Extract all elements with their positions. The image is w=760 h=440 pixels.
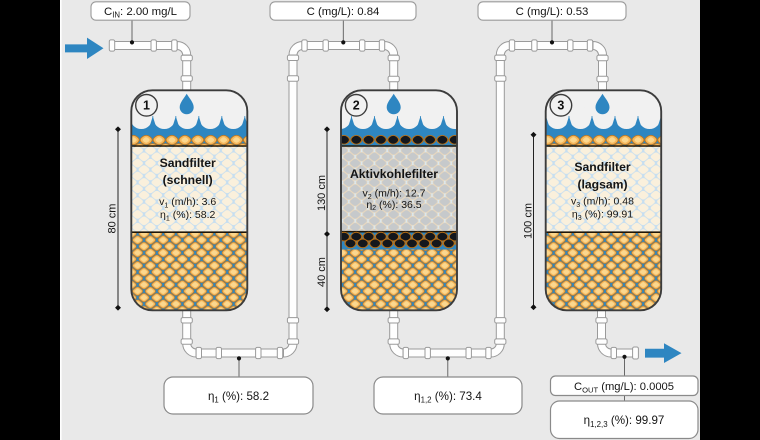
svg-text:3: 3 [557, 99, 564, 113]
svg-text:η3​ (%): 99.91: η3​ (%): 99.91 [572, 209, 633, 222]
svg-text:Aktivkohlefilter: Aktivkohlefilter [350, 167, 438, 181]
svg-text:2: 2 [353, 99, 360, 113]
svg-text:(lagsam): (lagsam) [577, 177, 627, 191]
svg-text:80 cm: 80 cm [106, 204, 118, 234]
svg-text:130 cm: 130 cm [316, 175, 328, 211]
svg-text:C (mg/L): 0.84: C (mg/L): 0.84 [307, 6, 380, 18]
svg-text:C (mg/L): 0.53: C (mg/L): 0.53 [516, 6, 589, 18]
svg-text:(schnell): (schnell) [163, 173, 213, 187]
svg-text:100 cm: 100 cm [522, 203, 534, 239]
svg-text:v1​ (m/h): 3.6: v1​ (m/h): 3.6 [159, 196, 216, 209]
svg-text:40 cm: 40 cm [316, 257, 328, 287]
svg-text:v3​ (m/h): 0.48: v3​ (m/h): 0.48 [571, 196, 634, 209]
svg-text:Sandfilter: Sandfilter [574, 160, 630, 174]
svg-text:1: 1 [143, 99, 150, 113]
svg-text:Sandfilter: Sandfilter [160, 156, 216, 170]
